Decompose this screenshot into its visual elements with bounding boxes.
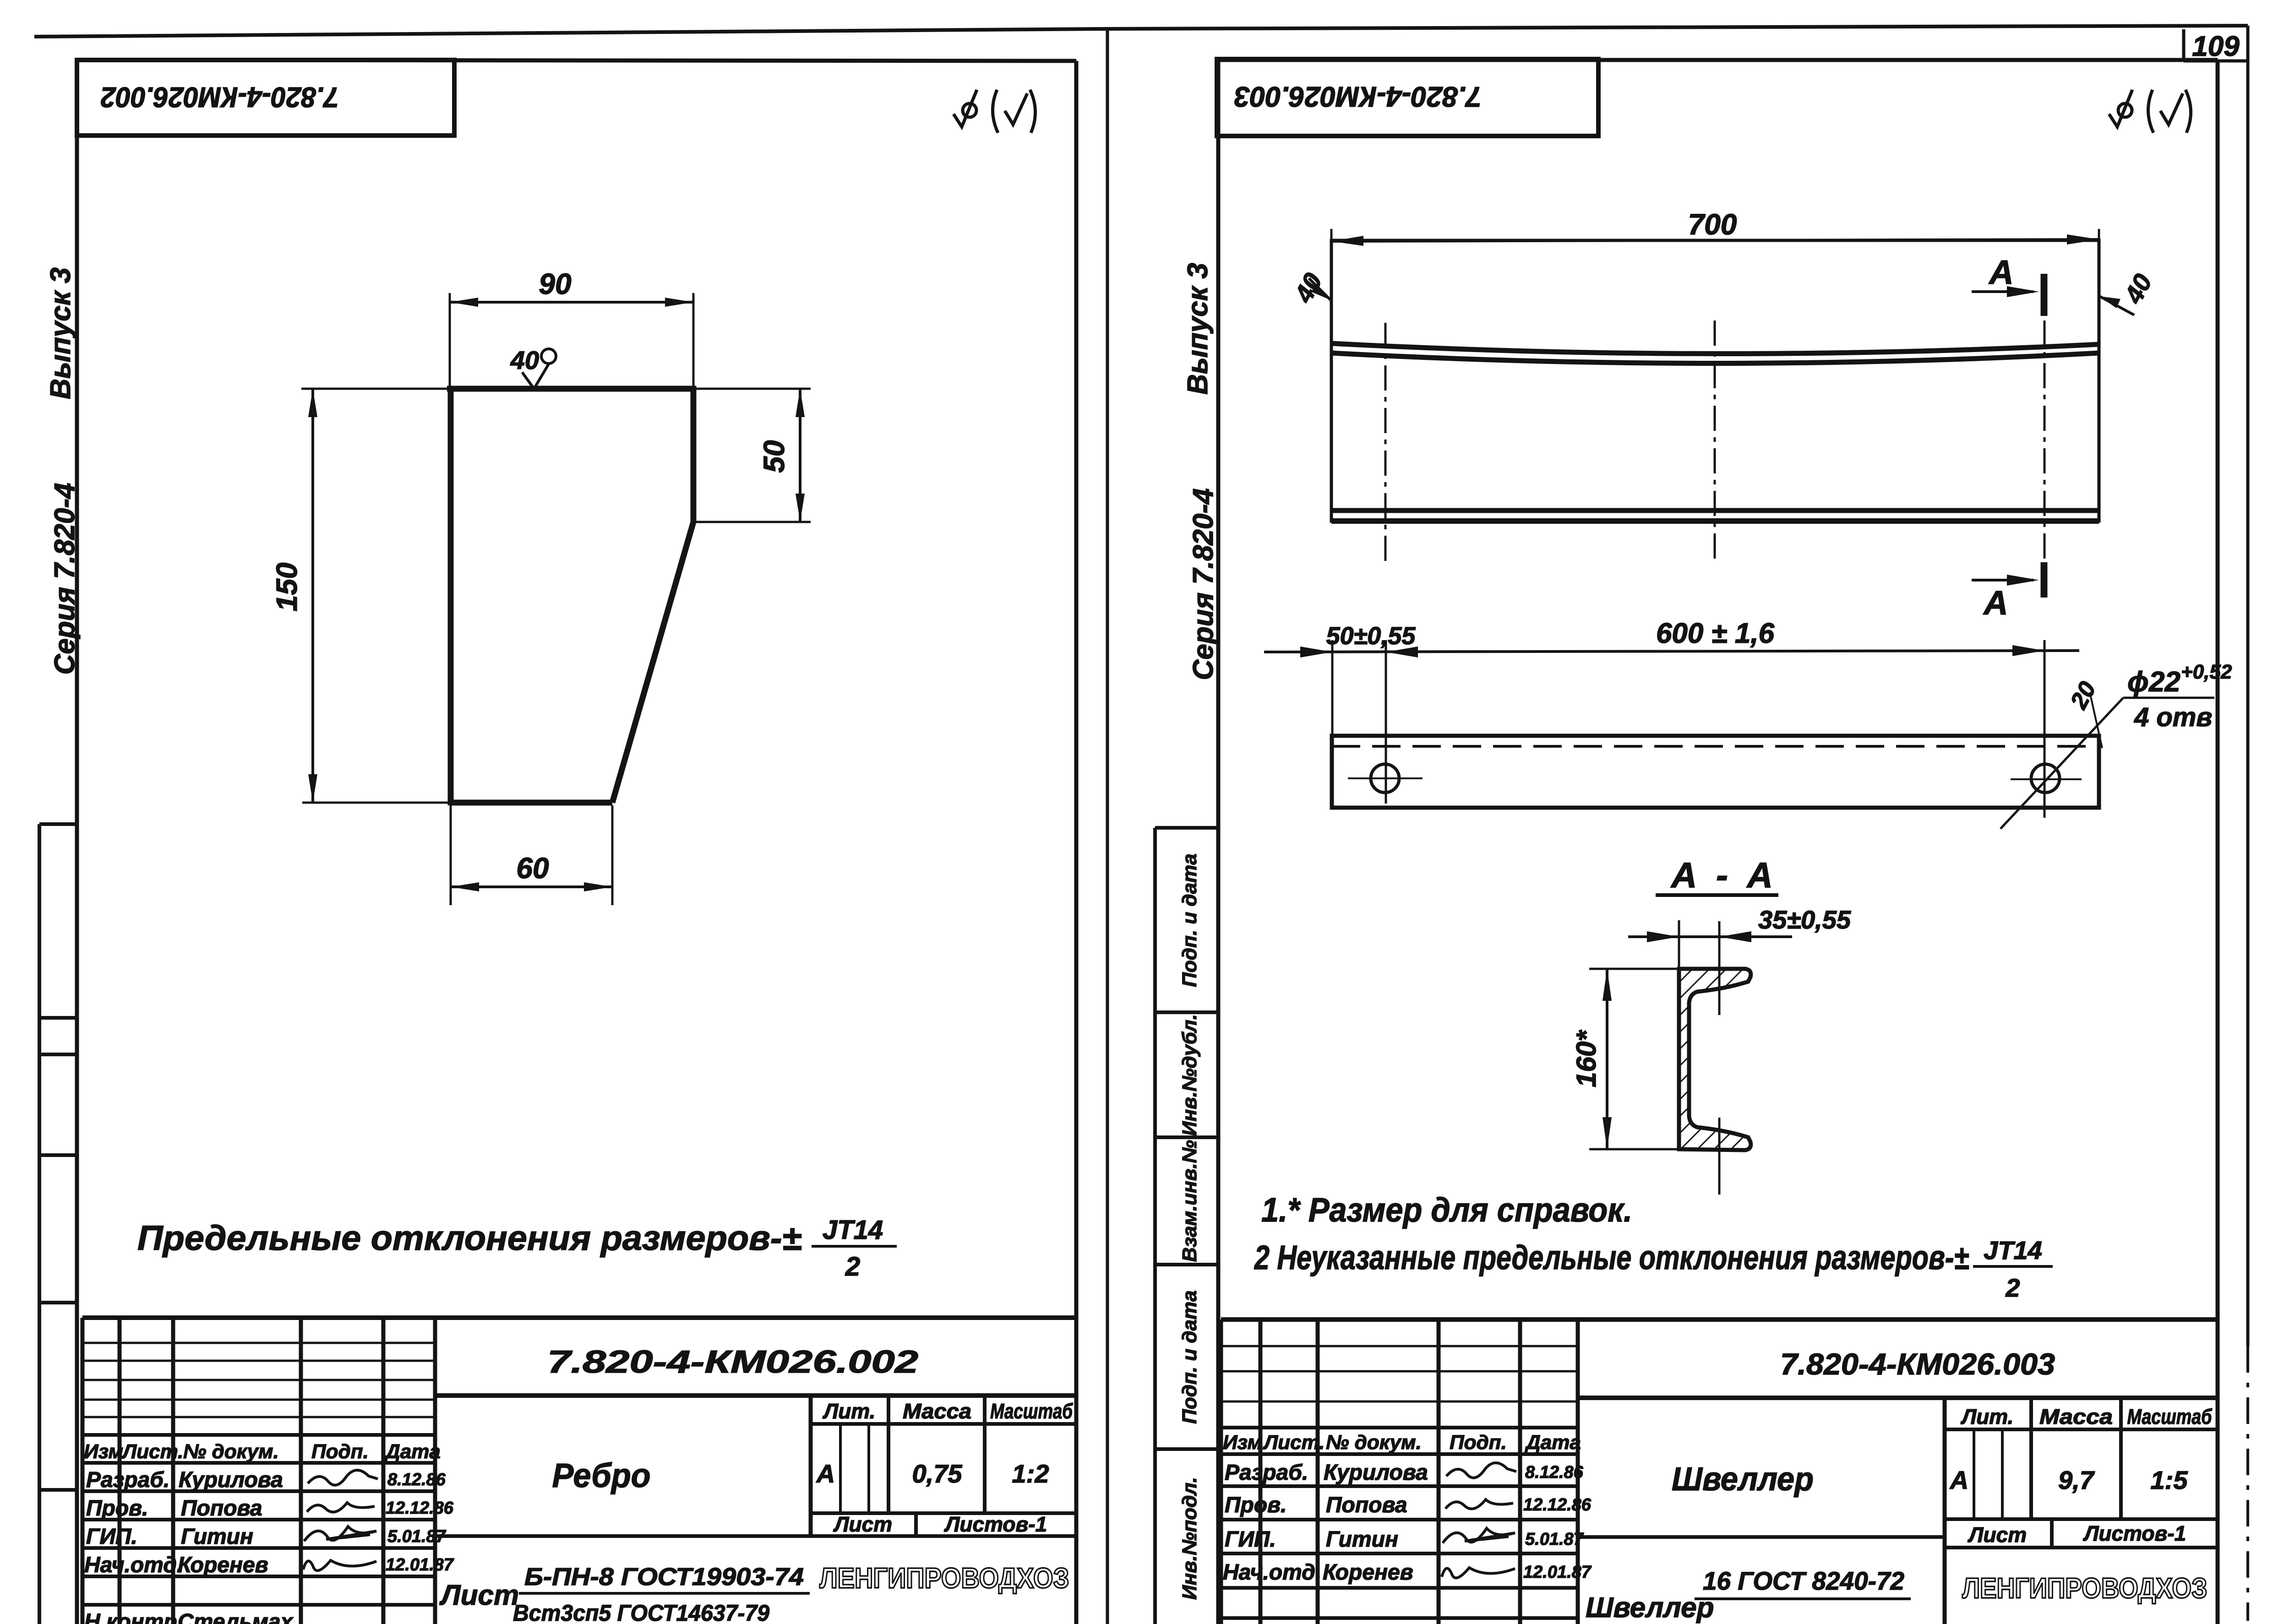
svg-text:Гитин: Гитин (181, 1525, 253, 1549)
svg-text:А - А: А - А (1670, 855, 1777, 895)
svg-text:50±0,55: 50±0,55 (1326, 622, 1416, 650)
svg-text:12.12.86: 12.12.86 (1523, 1495, 1592, 1515)
svg-text:Масштаб: Масштаб (2127, 1405, 2213, 1428)
svg-text:Швеллер: Швеллер (1672, 1461, 1814, 1498)
svg-text:8.12.86: 8.12.86 (387, 1470, 446, 1489)
svg-text:Лист.: Лист. (121, 1440, 183, 1463)
svg-text:ϕ22: ϕ22 (2127, 666, 2180, 698)
svg-text:Взам.инв.№: Взам.инв.№ (1178, 1140, 1201, 1262)
svg-text:8.12.86: 8.12.86 (1525, 1463, 1584, 1482)
svg-text:600 ± 1,6: 600 ± 1,6 (1656, 618, 1775, 649)
svg-text:ЛЕНГИПРОВОДХОЗ: ЛЕНГИПРОВОДХОЗ (820, 1563, 1069, 1594)
svg-text:Попова: Попова (1326, 1493, 1407, 1517)
svg-text:Разраб.: Разраб. (1225, 1461, 1308, 1485)
svg-text:9,7: 9,7 (2058, 1466, 2095, 1494)
svg-text:7.820-4-КМ026.002: 7.820-4-КМ026.002 (547, 1344, 918, 1380)
svg-text:Вст3сп5 ГОСТ14637-79: Вст3сп5 ГОСТ14637-79 (513, 1600, 769, 1624)
svg-text:4 отв: 4 отв (2134, 702, 2212, 732)
svg-text:Выпуск 3: Выпуск 3 (45, 267, 76, 399)
svg-text:2: 2 (2005, 1273, 2020, 1302)
svg-text:Лист: Лист (439, 1580, 519, 1611)
svg-text:Стельмах: Стельмах (178, 1610, 294, 1624)
svg-text:Подп. и дата: Подп. и дата (1178, 1290, 1201, 1423)
svg-text:Подп.: Подп. (1450, 1431, 1507, 1454)
svg-text:12.01.87: 12.01.87 (1523, 1563, 1592, 1582)
svg-text:№ докум.: № докум. (1326, 1431, 1422, 1454)
svg-text:Курилова: Курилова (179, 1468, 283, 1492)
svg-text:Выпуск 3: Выпуск 3 (1182, 263, 1214, 395)
svg-text:Дата: Дата (1524, 1431, 1581, 1454)
svg-text:Масса: Масса (2039, 1405, 2113, 1428)
svg-text:Курилова: Курилова (1324, 1461, 1428, 1485)
svg-text:16 ГОСТ 8240-72: 16 ГОСТ 8240-72 (1703, 1566, 1904, 1595)
svg-text:5.01.87: 5.01.87 (387, 1527, 447, 1546)
svg-text:Дата: Дата (384, 1440, 441, 1463)
svg-text:А: А (1949, 1466, 1968, 1494)
svg-text:109: 109 (2192, 31, 2240, 62)
svg-text:Н.контр: Н.контр (84, 1610, 177, 1624)
svg-text:Лист.: Лист. (1263, 1431, 1325, 1454)
svg-text:Масштаб: Масштаб (990, 1399, 1073, 1423)
svg-text:Разраб.: Разраб. (86, 1468, 169, 1492)
svg-text:2 Неуказанные предельные откл: 2 Неуказанные предельные отклонения разм… (1254, 1238, 1969, 1276)
svg-text:50: 50 (758, 440, 790, 473)
svg-text:ГИП.: ГИП. (1225, 1527, 1276, 1552)
svg-text:Нач.отд.: Нач.отд. (1223, 1560, 1321, 1585)
svg-text:JT14: JT14 (1984, 1236, 2042, 1265)
svg-text:5.01.87: 5.01.87 (1525, 1530, 1584, 1549)
svg-text:+0,52: +0,52 (2181, 661, 2232, 683)
svg-text:Инв.№подл.: Инв.№подл. (1178, 1477, 1201, 1600)
svg-text:Листов-1: Листов-1 (2083, 1521, 2186, 1545)
svg-text:ГИП.: ГИП. (86, 1525, 137, 1549)
svg-text:Пров.: Пров. (86, 1496, 148, 1521)
svg-text:Лист: Лист (1968, 1523, 2027, 1547)
svg-text:Коренев: Коренев (1323, 1560, 1413, 1585)
svg-text:Серия 7.820-4: Серия 7.820-4 (49, 483, 81, 674)
svg-text:Лит.: Лит. (1961, 1405, 2014, 1428)
svg-text:7.820-4-КМ026.003: 7.820-4-КМ026.003 (1780, 1347, 2055, 1381)
svg-text:Нач.отд.: Нач.отд. (84, 1553, 183, 1577)
svg-text:Масса: Масса (903, 1399, 971, 1423)
svg-text:ЛЕНГИПРОВОДХОЗ: ЛЕНГИПРОВОДХОЗ (1962, 1573, 2208, 1604)
svg-text:40: 40 (510, 346, 539, 375)
svg-text:Подп.: Подп. (311, 1440, 369, 1463)
svg-text:12.12.86: 12.12.86 (386, 1499, 454, 1518)
svg-text:7.820-4-КМ026.003: 7.820-4-КМ026.003 (1234, 81, 1482, 112)
svg-text:Изм: Изм (1223, 1431, 1262, 1454)
svg-text:Пров.: Пров. (1225, 1493, 1287, 1517)
svg-text:Листов-1: Листов-1 (944, 1512, 1047, 1536)
svg-text:Коренев: Коренев (178, 1553, 268, 1577)
svg-text:700: 700 (1688, 208, 1737, 241)
svg-text:12.01.87: 12.01.87 (386, 1555, 454, 1575)
svg-text:1.* Размер для справок.: 1.* Размер для справок. (1261, 1191, 1632, 1229)
svg-text:Попова: Попова (181, 1496, 262, 1521)
svg-text:Предельные отклонения размеров: Предельные отклонения размеров-± (137, 1219, 801, 1258)
svg-text:Изм: Изм (84, 1440, 123, 1463)
svg-text:Б-ПН-8 ГОСТ19903-74: Б-ПН-8 ГОСТ19903-74 (524, 1563, 804, 1591)
svg-text:90: 90 (539, 267, 571, 300)
svg-text:Швеллер: Швеллер (1586, 1592, 1714, 1624)
svg-text:2: 2 (845, 1252, 860, 1282)
svg-text:35±0,55: 35±0,55 (1758, 905, 1851, 934)
svg-text:7.820-4-КМ026.002: 7.820-4-КМ026.002 (101, 81, 339, 113)
svg-text:JT14: JT14 (823, 1215, 883, 1245)
svg-text:60: 60 (516, 852, 549, 885)
svg-text:1:5: 1:5 (2151, 1466, 2188, 1494)
svg-text:Инв.№дубл.: Инв.№дубл. (1178, 1014, 1201, 1136)
svg-text:А: А (816, 1459, 835, 1488)
svg-text:Лист: Лист (833, 1512, 892, 1536)
svg-text:Подп. и дата: Подп. и дата (1178, 853, 1201, 987)
svg-text:1:2: 1:2 (1012, 1459, 1049, 1488)
svg-text:Ребро: Ребро (552, 1456, 651, 1494)
svg-text:А: А (1988, 253, 2013, 291)
svg-text:160*: 160* (1571, 1030, 1602, 1087)
svg-text:№ докум.: № докум. (183, 1440, 279, 1463)
svg-text:А: А (1983, 584, 2008, 622)
svg-text:Лит.: Лит. (823, 1399, 876, 1423)
svg-text:0,75: 0,75 (912, 1459, 963, 1488)
svg-text:Серия 7.820-4: Серия 7.820-4 (1188, 488, 1219, 680)
svg-text:Гитин: Гитин (1326, 1527, 1398, 1552)
svg-text:150: 150 (270, 563, 303, 612)
